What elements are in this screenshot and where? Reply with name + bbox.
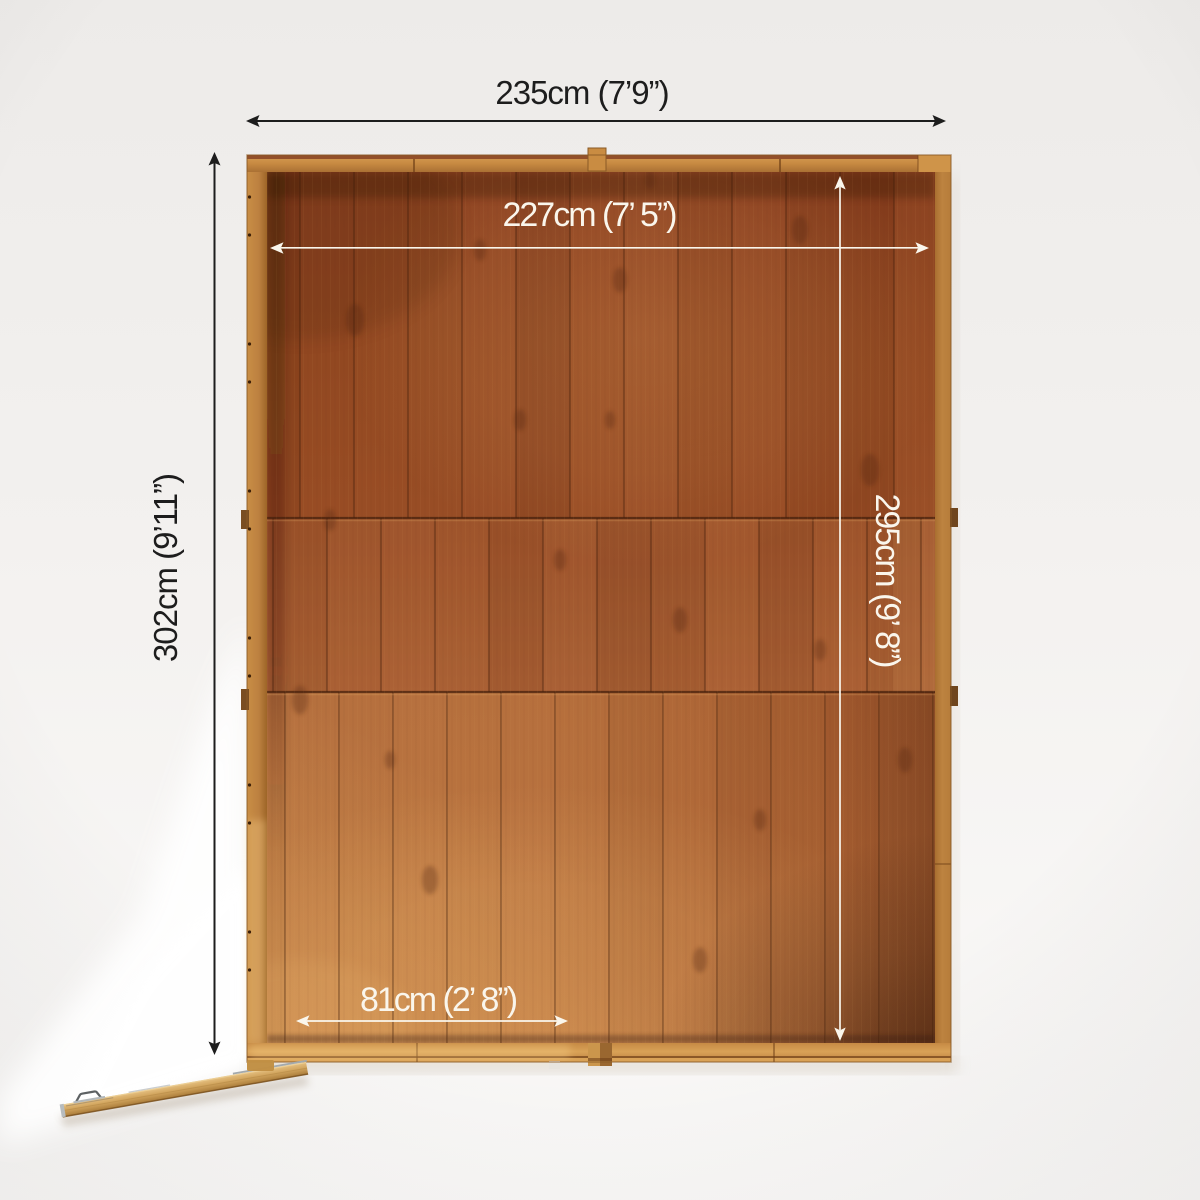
- svg-text:295cm (9’ 8”): 295cm (9’ 8”): [868, 493, 906, 667]
- svg-text:227cm (7’ 5”): 227cm (7’ 5”): [502, 196, 676, 234]
- svg-text:81cm (2’ 8”): 81cm (2’ 8”): [360, 981, 517, 1019]
- svg-text:302cm (9’11”): 302cm (9’11”): [147, 474, 184, 662]
- svg-text:235cm (7’9”): 235cm (7’9”): [495, 74, 668, 111]
